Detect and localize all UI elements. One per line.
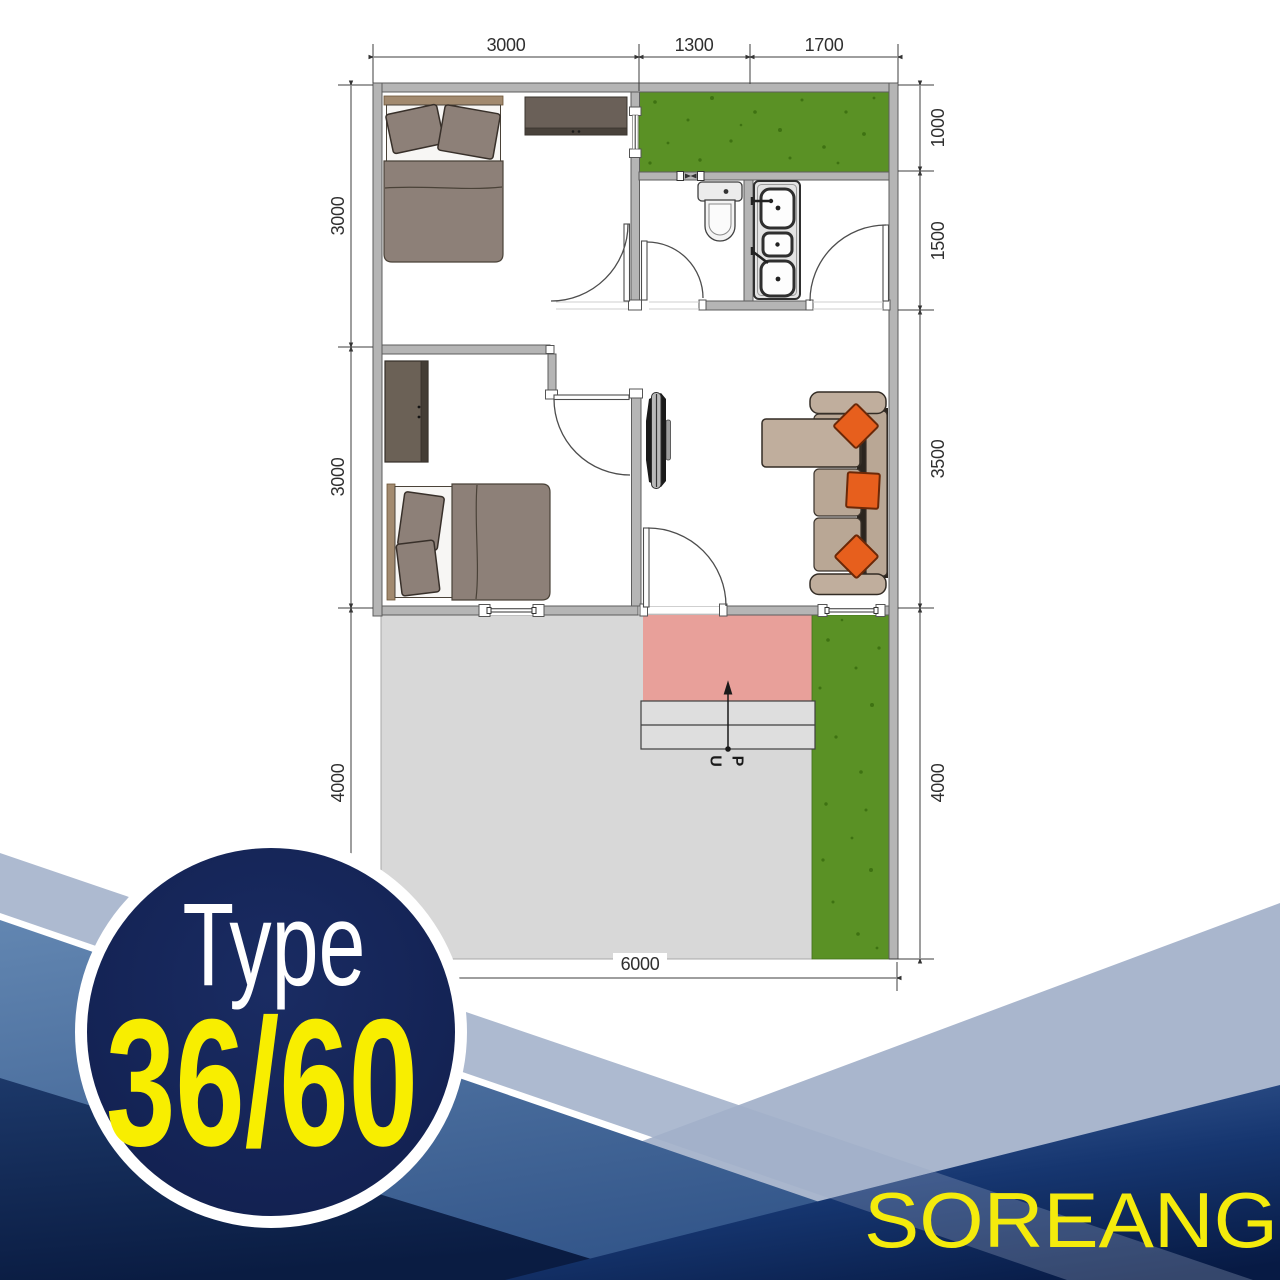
svg-text:SOREANG: SOREANG xyxy=(864,1176,1278,1264)
svg-text:4000: 4000 xyxy=(928,763,948,802)
svg-text:U: U xyxy=(707,755,724,767)
svg-text:4000: 4000 xyxy=(328,763,348,802)
svg-text:1300: 1300 xyxy=(675,35,714,55)
svg-text:1000: 1000 xyxy=(928,108,948,147)
svg-text:6000: 6000 xyxy=(621,954,660,974)
svg-text:P: P xyxy=(729,756,746,767)
svg-text:3000: 3000 xyxy=(487,35,526,55)
svg-text:3500: 3500 xyxy=(928,439,948,478)
svg-text:3000: 3000 xyxy=(328,457,348,496)
svg-text:1700: 1700 xyxy=(805,35,844,55)
svg-text:3000: 3000 xyxy=(328,196,348,235)
svg-text:1500: 1500 xyxy=(928,221,948,260)
svg-text:36/60: 36/60 xyxy=(106,982,418,1184)
